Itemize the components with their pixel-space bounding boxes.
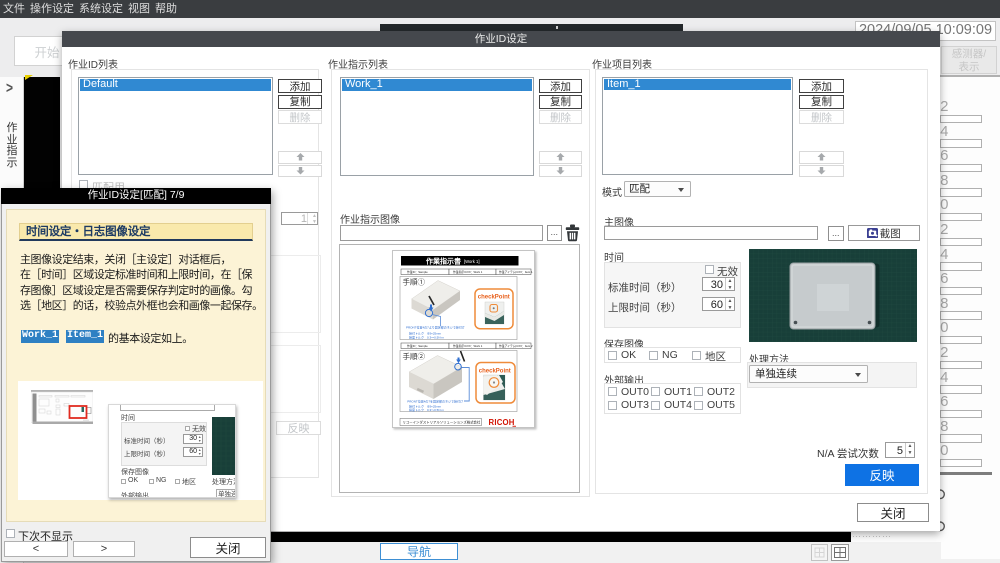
svg-text:作業アイテムICXX：Item 2: 作業アイテムICXX：Item 2	[499, 344, 533, 348]
svg-text:作業ID：Sample: 作業ID：Sample	[407, 270, 428, 274]
svg-text:PRONT位置4の7を固定部のネジで締付け: PRONT位置4の7を固定部のネジで締付け	[407, 399, 463, 404]
svg-text:PRONT位置4の7より固定部のネジで締付け: PRONT位置4の7より固定部のネジで締付け	[406, 325, 465, 330]
svg-text:checkPoint: checkPoint	[478, 295, 510, 301]
svg-text:作業指示ICXX：Work 1: 作業指示ICXX：Work 1	[453, 344, 483, 348]
svg-text:作業ID：Sample: 作業ID：Sample	[407, 344, 428, 348]
svg-text:作業指示書: 作業指示書	[426, 256, 461, 265]
svg-text:RICOH: RICOH	[489, 418, 515, 427]
svg-text:作業指示ICXX：Work 1: 作業指示ICXX：Work 1	[453, 270, 483, 274]
svg-text:手順②: 手順②	[403, 351, 426, 361]
svg-text:[Work 1]: [Work 1]	[464, 259, 480, 264]
svg-text:締度トルク 0.3～0.5N·m: 締度トルク 0.3～0.5N·m	[409, 407, 445, 412]
svg-text:checkPoint: checkPoint	[479, 369, 511, 375]
svg-text:リコーインダストリアルソリューションズ株式会社: リコーインダストリアルソリューションズ株式会社	[403, 420, 481, 425]
svg-text:締度トルク 0.3～0.5N·m: 締度トルク 0.3～0.5N·m	[409, 334, 445, 339]
svg-text:作業アイテムICXX：Item 1: 作業アイテムICXX：Item 1	[499, 270, 533, 274]
svg-text:手順①: 手順①	[403, 277, 426, 287]
